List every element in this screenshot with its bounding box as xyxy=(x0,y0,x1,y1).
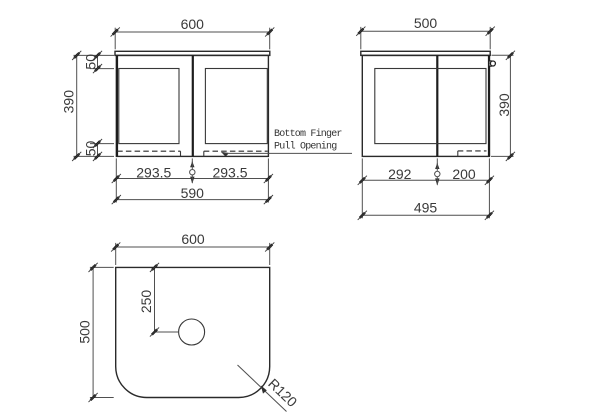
svg-text:390: 390 xyxy=(496,93,512,117)
svg-text:250: 250 xyxy=(138,290,154,314)
svg-text:500: 500 xyxy=(414,15,438,31)
svg-text:200: 200 xyxy=(452,166,476,182)
svg-text:Bottom Finger: Bottom Finger xyxy=(274,128,342,140)
svg-text:495: 495 xyxy=(414,200,438,216)
svg-text:50: 50 xyxy=(83,141,99,157)
svg-text:R120: R120 xyxy=(265,375,300,410)
svg-text:500: 500 xyxy=(77,320,93,344)
svg-text:293.5: 293.5 xyxy=(136,164,171,180)
svg-text:590: 590 xyxy=(181,185,205,201)
svg-text:390: 390 xyxy=(61,90,77,114)
svg-text:Pull Opening: Pull Opening xyxy=(274,141,337,153)
svg-text:292: 292 xyxy=(388,166,412,182)
svg-text:600: 600 xyxy=(181,231,205,247)
svg-text:293.5: 293.5 xyxy=(212,164,247,180)
svg-text:50: 50 xyxy=(83,54,99,70)
svg-text:600: 600 xyxy=(181,16,205,32)
